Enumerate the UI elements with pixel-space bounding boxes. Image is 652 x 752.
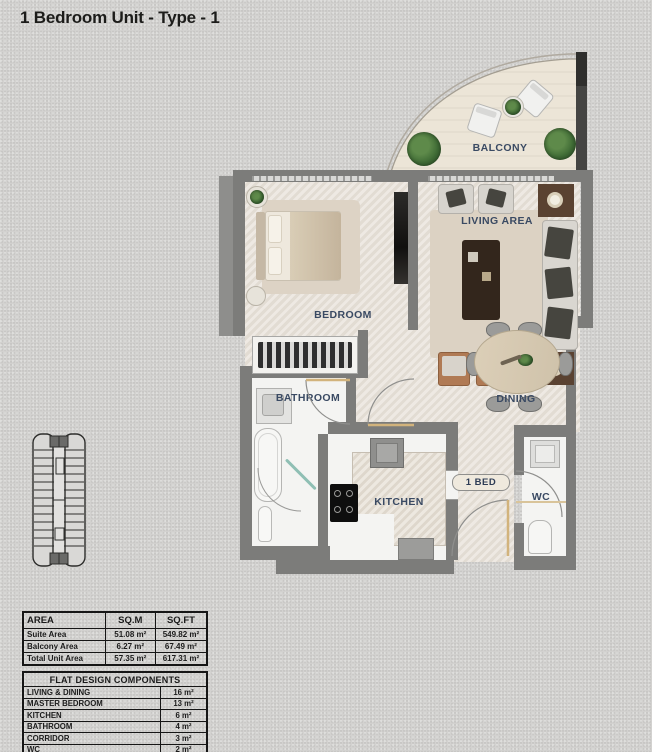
kitchen-sink-basin: [376, 443, 398, 463]
area-sqm: 51.08 m²: [105, 629, 155, 641]
key-plan-icon: [20, 424, 98, 576]
sofa-cushion: [545, 267, 574, 300]
bathroom-label: BATHROOM: [263, 392, 353, 404]
kitchen-counter-notch: [352, 514, 394, 547]
component-label: MASTER BEDROOM: [23, 698, 161, 710]
component-label: LIVING & DINING: [23, 687, 161, 699]
wall: [408, 182, 418, 330]
lamp-table: [538, 184, 574, 217]
area-sqm: 6.27 m²: [105, 641, 155, 653]
components-row: BATHROOM 4 m²: [23, 721, 207, 733]
window: [252, 176, 372, 181]
nightstand-plant-icon: [250, 190, 264, 204]
balcony-plant-icon: [407, 132, 441, 166]
wall: [318, 434, 328, 560]
dining-chair: [558, 352, 573, 376]
area-table-row: Total Unit Area 57.35 m² 617.31 m²: [23, 653, 207, 666]
components-row: KITCHEN 6 m²: [23, 710, 207, 722]
wall: [240, 372, 252, 548]
area-table: AREA SQ.M SQ.FT Suite Area 51.08 m² 549.…: [22, 611, 208, 666]
wall: [219, 176, 233, 336]
area-table-header: SQ.M: [105, 612, 155, 629]
component-value: 2 m²: [161, 744, 208, 752]
page-title: 1 Bedroom Unit - Type - 1: [20, 8, 220, 28]
sofa-cushion: [544, 307, 573, 340]
wall: [276, 560, 454, 574]
coffee-table-decor: [482, 272, 491, 281]
wall: [233, 170, 245, 336]
cooktop-burner: [346, 490, 353, 497]
component-value: 4 m²: [161, 721, 208, 733]
bed-headboard: [256, 212, 265, 280]
balcony-plant-icon: [544, 128, 576, 160]
sofa-cushion: [544, 226, 574, 259]
components-row: WC 2 m²: [23, 744, 207, 752]
bedroom-label: BEDROOM: [298, 309, 388, 321]
dining-label: DINING: [471, 393, 561, 405]
area-sqft: 549.82 m²: [155, 629, 207, 641]
nightstand: [246, 286, 266, 306]
wall: [514, 437, 524, 475]
area-label: Total Unit Area: [23, 653, 105, 666]
components-row: LIVING & DINING 16 m²: [23, 687, 207, 699]
tv-unit: [394, 192, 408, 284]
wall: [581, 170, 593, 326]
wardrobe-hangers: [258, 342, 352, 368]
component-value: 13 m²: [161, 698, 208, 710]
components-table: FLAT DESIGN COMPONENTS LIVING & DINING 1…: [22, 671, 208, 752]
bed-pillow: [268, 247, 282, 275]
coffee-table-decor: [468, 252, 478, 262]
area-label: Suite Area: [23, 629, 105, 641]
components-table-title: FLAT DESIGN COMPONENTS: [23, 672, 207, 687]
component-label: CORRIDOR: [23, 733, 161, 745]
floorplan-page: 1 Bedroom Unit - Type - 1 BALCONY: [0, 0, 652, 752]
component-value: 16 m²: [161, 687, 208, 699]
balcony-table-plant-icon: [505, 99, 521, 115]
area-sqft: 67.49 m²: [155, 641, 207, 653]
wall: [514, 425, 576, 437]
component-value: 3 m²: [161, 733, 208, 745]
bed-pillow: [268, 215, 282, 243]
component-label: WC: [23, 744, 161, 752]
unit-type-badge: 1 BED: [452, 474, 510, 491]
area-label: Balcony Area: [23, 641, 105, 653]
wall: [446, 498, 458, 560]
component-label: BATHROOM: [23, 721, 161, 733]
components-row: CORRIDOR 3 m²: [23, 733, 207, 745]
component-value: 6 m²: [161, 710, 208, 722]
kitchen-label: KITCHEN: [354, 496, 444, 508]
living-area-label: LIVING AREA: [447, 215, 547, 227]
cooktop-burner: [334, 506, 341, 513]
wc-label: WC: [516, 491, 566, 503]
area-sqft: 617.31 m²: [155, 653, 207, 666]
toilet: [258, 506, 272, 542]
area-table-row: Balcony Area 6.27 m² 67.49 m²: [23, 641, 207, 653]
kitchen-appliance: [398, 538, 434, 560]
component-label: KITCHEN: [23, 710, 161, 722]
wall: [446, 434, 458, 470]
area-table-header: AREA: [23, 612, 105, 629]
components-row: MASTER BEDROOM 13 m²: [23, 698, 207, 710]
wall: [514, 523, 524, 560]
entry-corridor-floor: [454, 430, 514, 562]
cooktop-burner: [334, 490, 341, 497]
wc-toilet: [528, 520, 552, 554]
wall: [240, 546, 330, 560]
wall: [358, 330, 368, 378]
window: [428, 176, 554, 181]
balcony-label: BALCONY: [455, 142, 545, 154]
area-sqm: 57.35 m²: [105, 653, 155, 666]
components-header-row: FLAT DESIGN COMPONENTS: [23, 672, 207, 687]
bathtub-inner: [258, 433, 278, 497]
area-table-row: Suite Area 51.08 m² 549.82 m²: [23, 629, 207, 641]
cooktop-burner: [346, 506, 353, 513]
area-table-header: SQ.FT: [155, 612, 207, 629]
wall: [328, 422, 458, 434]
dining-table: [474, 330, 560, 394]
accent-chair-seat: [442, 356, 466, 376]
wc-sink-basin: [535, 445, 555, 463]
bed-blanket: [290, 212, 341, 280]
area-table-header-row: AREA SQ.M SQ.FT: [23, 612, 207, 629]
